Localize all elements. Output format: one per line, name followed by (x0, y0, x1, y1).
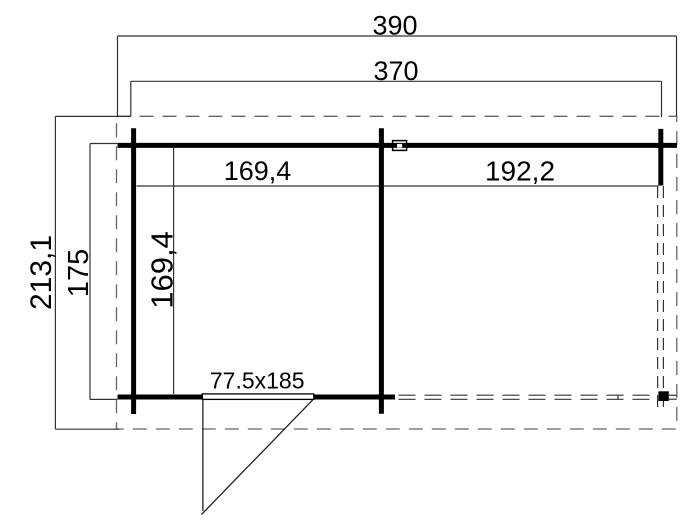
svg-text:370: 370 (373, 56, 418, 86)
svg-text:192,2: 192,2 (485, 156, 555, 187)
svg-text:77.5x185: 77.5x185 (210, 368, 305, 394)
svg-text:213,1: 213,1 (25, 235, 58, 310)
svg-text:175: 175 (63, 249, 95, 297)
svg-text:169,4: 169,4 (224, 156, 292, 186)
svg-text:169,4: 169,4 (144, 231, 179, 309)
svg-text:390: 390 (372, 11, 417, 41)
